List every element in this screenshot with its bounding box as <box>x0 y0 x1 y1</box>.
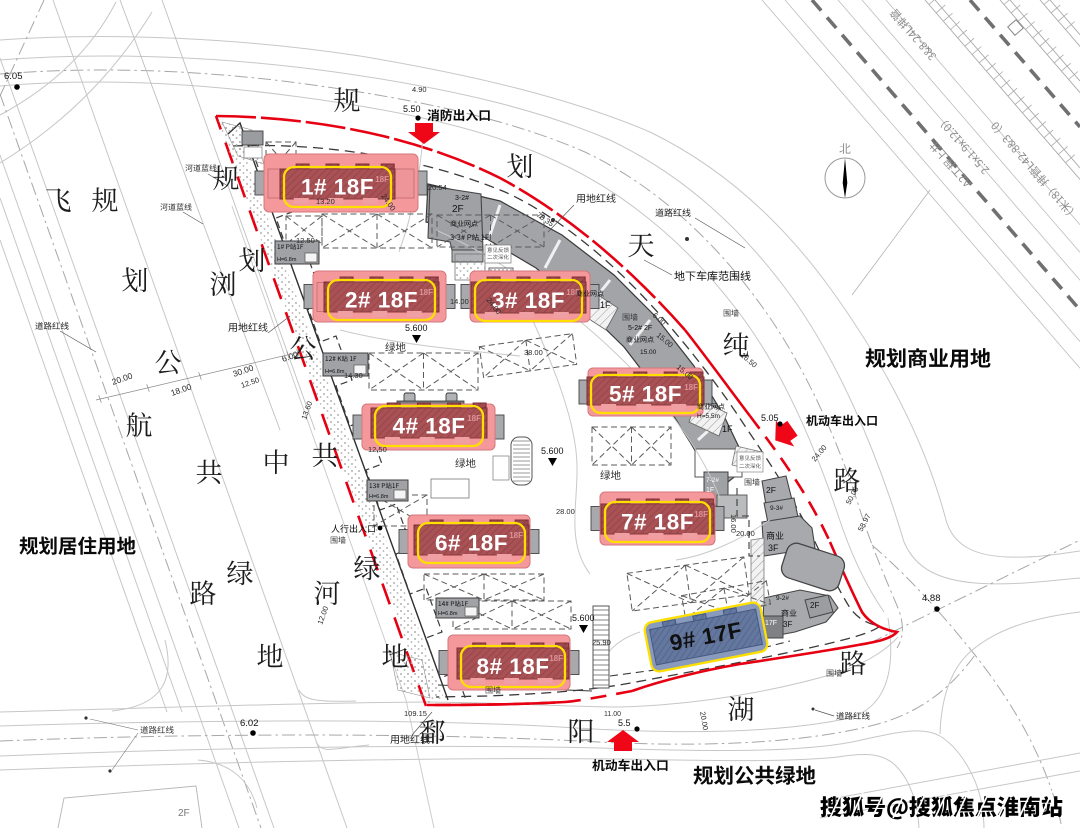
svg-text:3F: 3F <box>783 620 792 629</box>
svg-text:14.00: 14.00 <box>450 297 469 306</box>
svg-text:109.15: 109.15 <box>404 709 427 718</box>
svg-text:5.50: 5.50 <box>403 104 421 114</box>
svg-text:7-2#: 7-2# <box>706 477 719 484</box>
svg-text:H=6.8m: H=6.8m <box>438 611 458 617</box>
svg-text:11.00: 11.00 <box>604 711 621 718</box>
svg-text:18F: 18F <box>419 288 433 297</box>
svg-text:38.00: 38.00 <box>524 348 543 357</box>
svg-text:6.05: 6.05 <box>4 71 23 82</box>
svg-text:H=6.8m: H=6.8m <box>325 369 345 375</box>
svg-text:3F: 3F <box>768 543 779 553</box>
svg-text:15.00: 15.00 <box>640 349 657 356</box>
svg-text:9-2#: 9-2# <box>776 595 789 602</box>
svg-text:1F: 1F <box>722 424 733 434</box>
svg-text:18F: 18F <box>694 510 708 519</box>
svg-text:8# 18F: 8# 18F <box>476 654 549 679</box>
svg-text:18F: 18F <box>509 531 523 540</box>
svg-text:H=5.5m: H=5.5m <box>697 413 720 420</box>
svg-text:4.90: 4.90 <box>412 85 427 94</box>
svg-text:18F: 18F <box>549 654 563 663</box>
svg-text:12.50: 12.50 <box>368 445 387 454</box>
svg-text:5# 18F: 5# 18F <box>609 382 682 407</box>
svg-text:5-2# 2F: 5-2# 2F <box>628 325 652 332</box>
svg-text:1# 18F: 1# 18F <box>301 175 374 200</box>
svg-text:5.600: 5.600 <box>572 613 595 623</box>
svg-text:17F: 17F <box>765 620 777 627</box>
svg-text:18F: 18F <box>684 383 698 392</box>
svg-text:5.05: 5.05 <box>761 413 779 423</box>
svg-text:4.88: 4.88 <box>922 593 941 604</box>
svg-text:6# 18F: 6# 18F <box>435 531 508 556</box>
svg-text:14.30: 14.30 <box>344 371 363 380</box>
svg-text:20.00: 20.00 <box>736 529 755 538</box>
svg-text:5.5: 5.5 <box>618 718 631 728</box>
svg-text:6.02: 6.02 <box>240 718 259 729</box>
svg-text:1F: 1F <box>706 487 714 494</box>
svg-text:H=6.8m: H=6.8m <box>369 494 389 500</box>
svg-text:20.54: 20.54 <box>428 183 447 192</box>
svg-text:18F: 18F <box>375 175 389 184</box>
svg-text:13.20: 13.20 <box>316 197 335 206</box>
svg-text:3-2#: 3-2# <box>455 195 469 202</box>
svg-text:H=6.8m: H=6.8m <box>277 257 297 263</box>
svg-text:28.00: 28.00 <box>556 507 575 516</box>
svg-text:2F: 2F <box>810 601 819 610</box>
svg-text:2# 18F: 2# 18F <box>345 288 418 313</box>
svg-text:12.50: 12.50 <box>296 236 315 245</box>
svg-text:9-3#: 9-3# <box>770 505 783 512</box>
svg-text:2F: 2F <box>452 204 464 215</box>
svg-text:5.600: 5.600 <box>405 323 428 333</box>
svg-text:5.600: 5.600 <box>541 446 564 456</box>
svg-text:25.90: 25.90 <box>592 638 611 647</box>
svg-text:2F: 2F <box>766 485 776 495</box>
svg-text:7# 18F: 7# 18F <box>621 510 694 535</box>
svg-text:2F: 2F <box>178 808 190 819</box>
svg-text:18F: 18F <box>467 414 481 423</box>
svg-text:1F: 1F <box>600 300 611 310</box>
svg-text:4# 18F: 4# 18F <box>392 414 465 439</box>
